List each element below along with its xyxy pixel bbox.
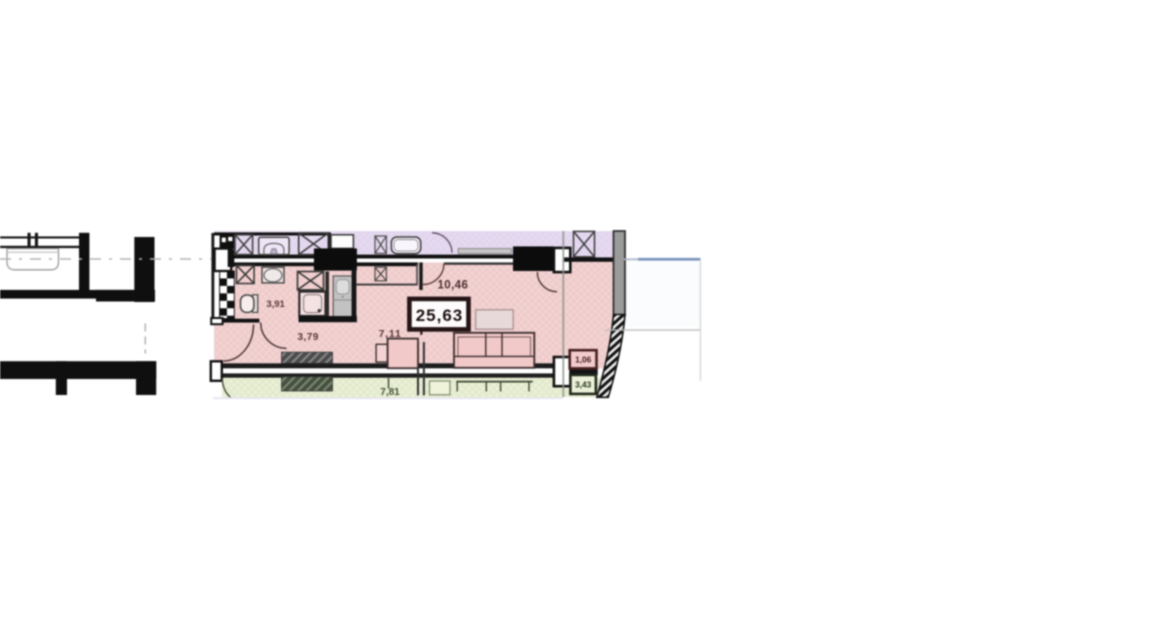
svg-text:3,91: 3,91	[266, 299, 285, 310]
svg-text:3,43: 3,43	[575, 380, 592, 390]
svg-text:10,46: 10,46	[438, 280, 469, 292]
svg-text:7,81: 7,81	[380, 387, 400, 398]
svg-text:1,06: 1,06	[575, 354, 592, 364]
svg-text:25,63: 25,63	[416, 306, 464, 325]
svg-text:3,79: 3,79	[297, 332, 318, 343]
svg-text:7,11: 7,11	[379, 328, 402, 340]
